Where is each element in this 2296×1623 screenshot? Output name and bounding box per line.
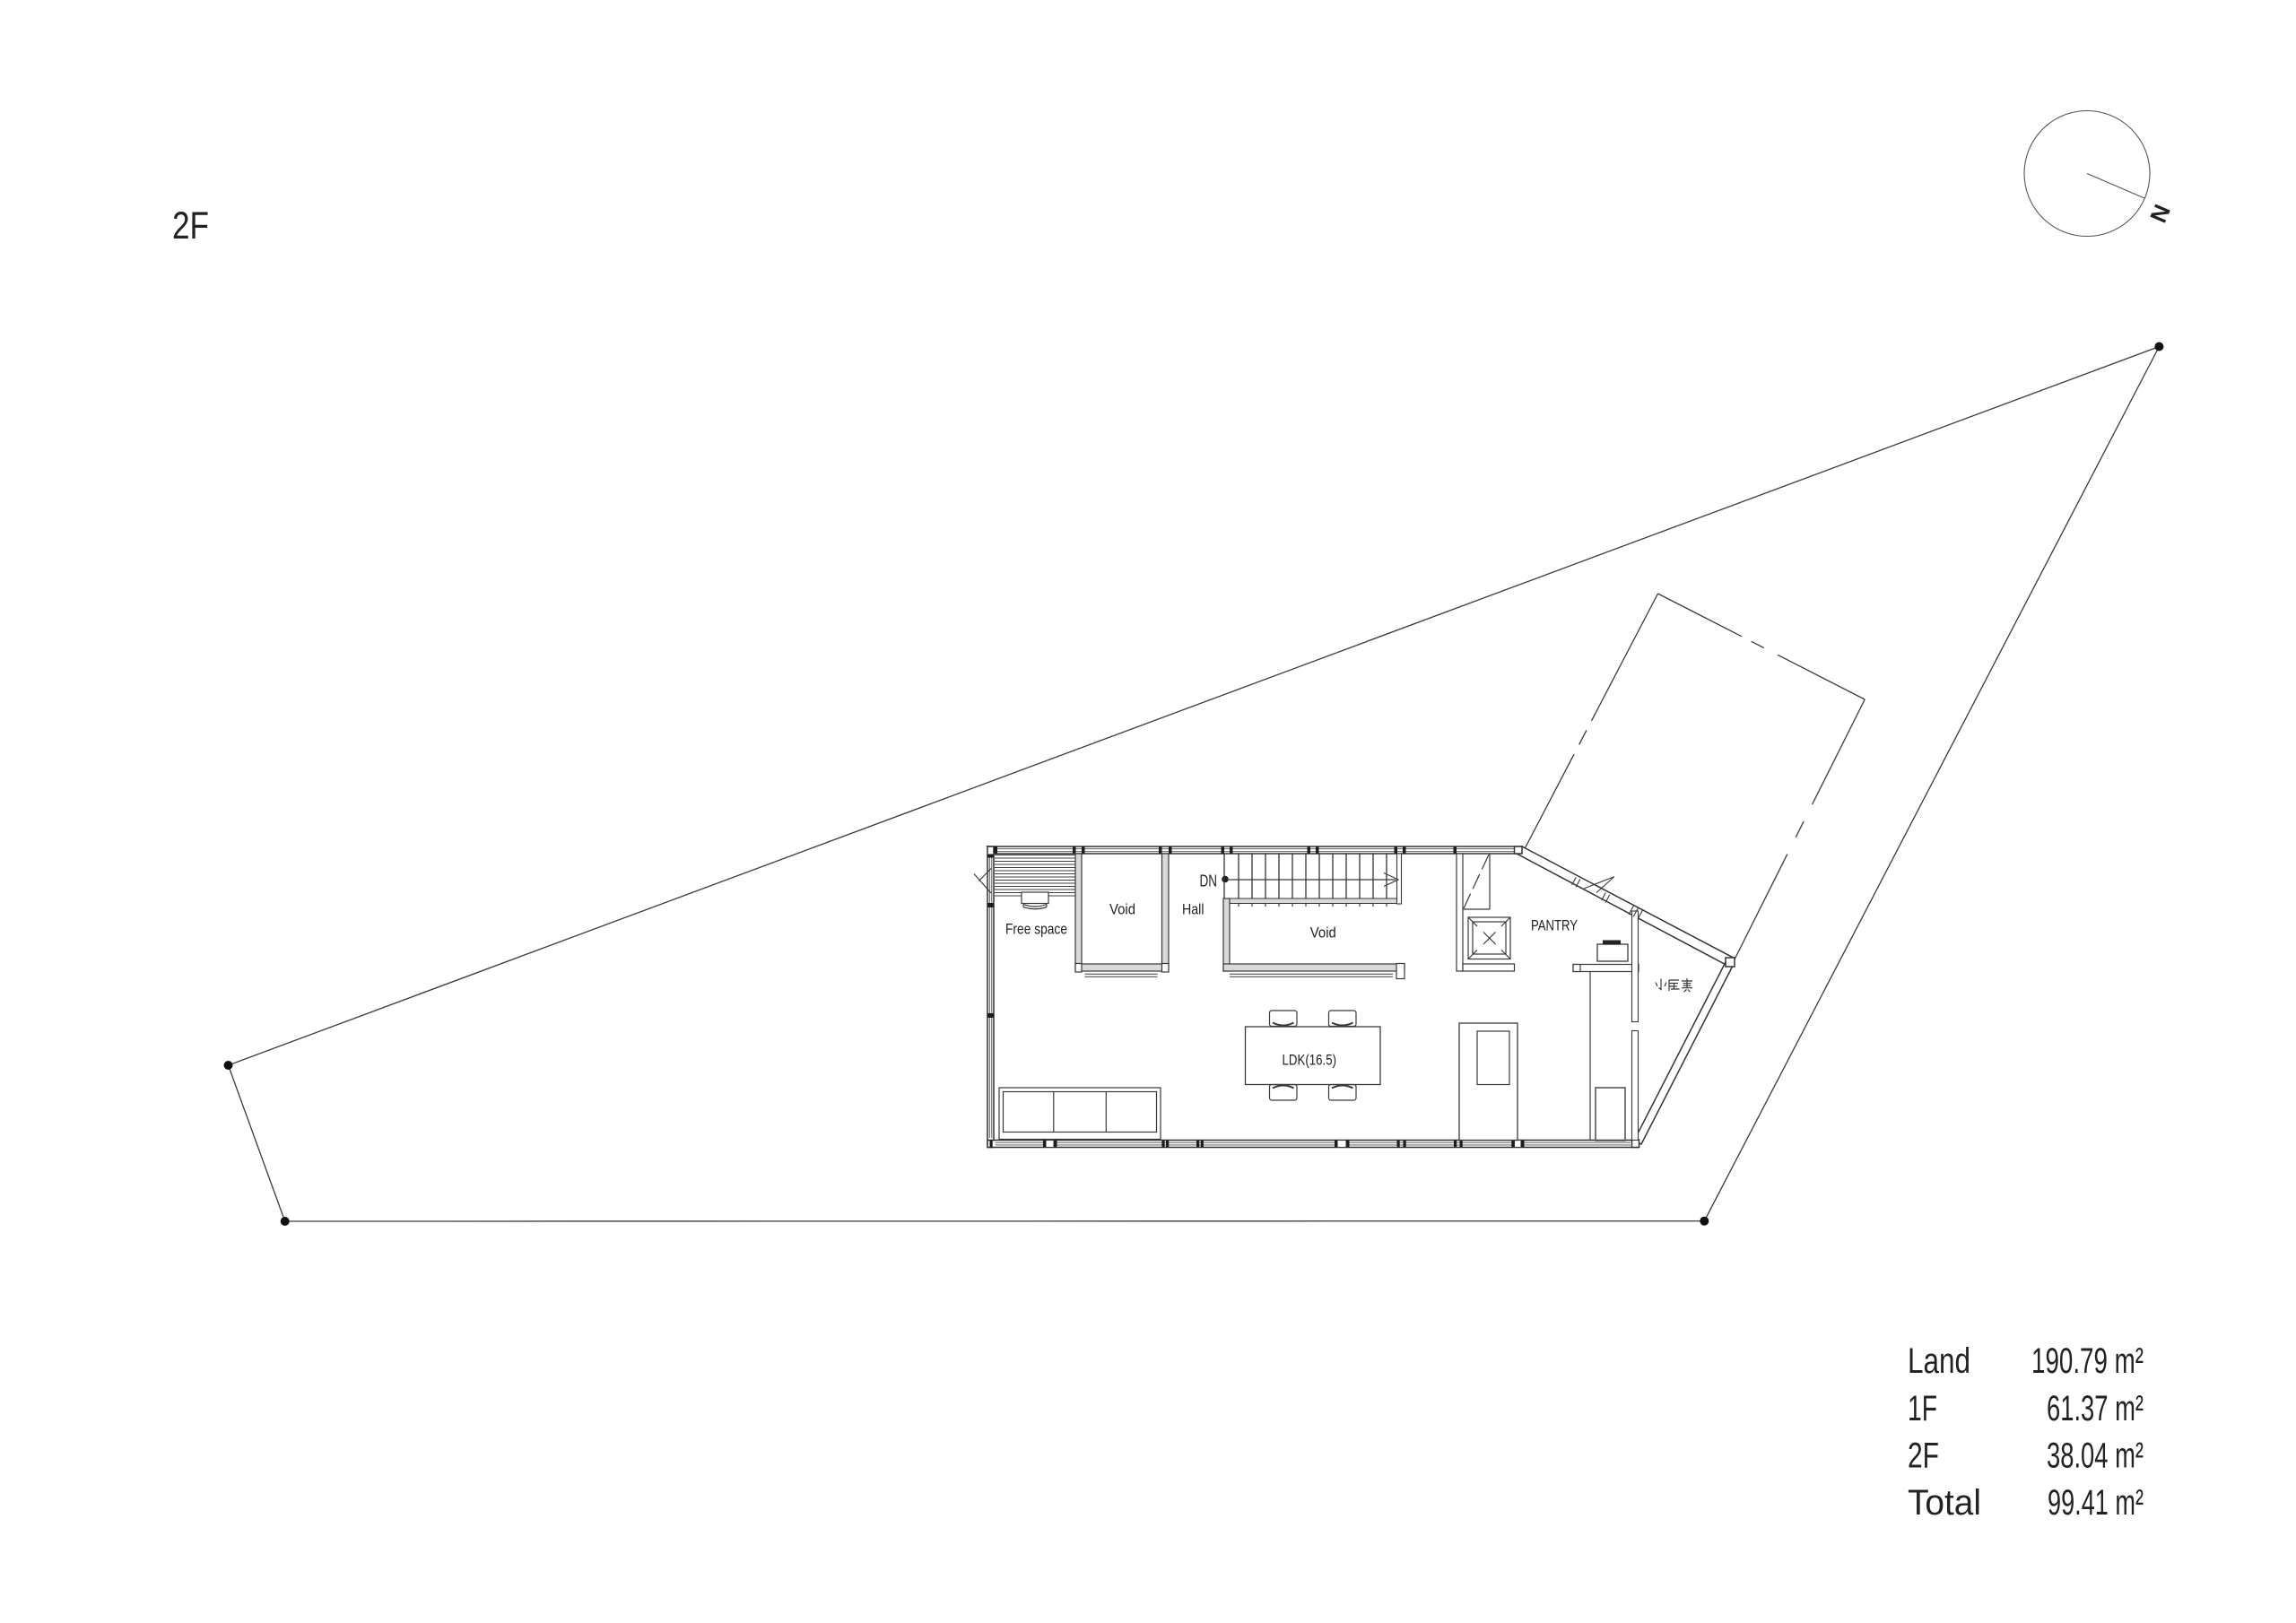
svg-text:Land: Land <box>1908 1341 1970 1381</box>
svg-text:LDK(16.5): LDK(16.5) <box>1283 1053 1337 1069</box>
svg-text:DN: DN <box>1200 872 1218 890</box>
svg-text:PANTRY: PANTRY <box>1531 918 1578 934</box>
svg-text:2F: 2F <box>1908 1436 1939 1476</box>
svg-text:61.37 m²: 61.37 m² <box>2047 1389 2144 1428</box>
svg-text:Hall: Hall <box>1182 902 1205 918</box>
svg-text:2F: 2F <box>172 204 209 247</box>
svg-text:99.41 m²: 99.41 m² <box>2048 1483 2144 1523</box>
svg-text:Void: Void <box>1310 925 1336 942</box>
svg-text:Total: Total <box>1908 1483 1981 1523</box>
svg-text:Free space: Free space <box>1005 921 1067 937</box>
svg-text:1F: 1F <box>1908 1389 1937 1428</box>
svg-text:190.79 m²: 190.79 m² <box>2031 1341 2144 1381</box>
svg-text:Void: Void <box>1109 902 1135 918</box>
svg-text:38.04 m²: 38.04 m² <box>2047 1436 2144 1476</box>
